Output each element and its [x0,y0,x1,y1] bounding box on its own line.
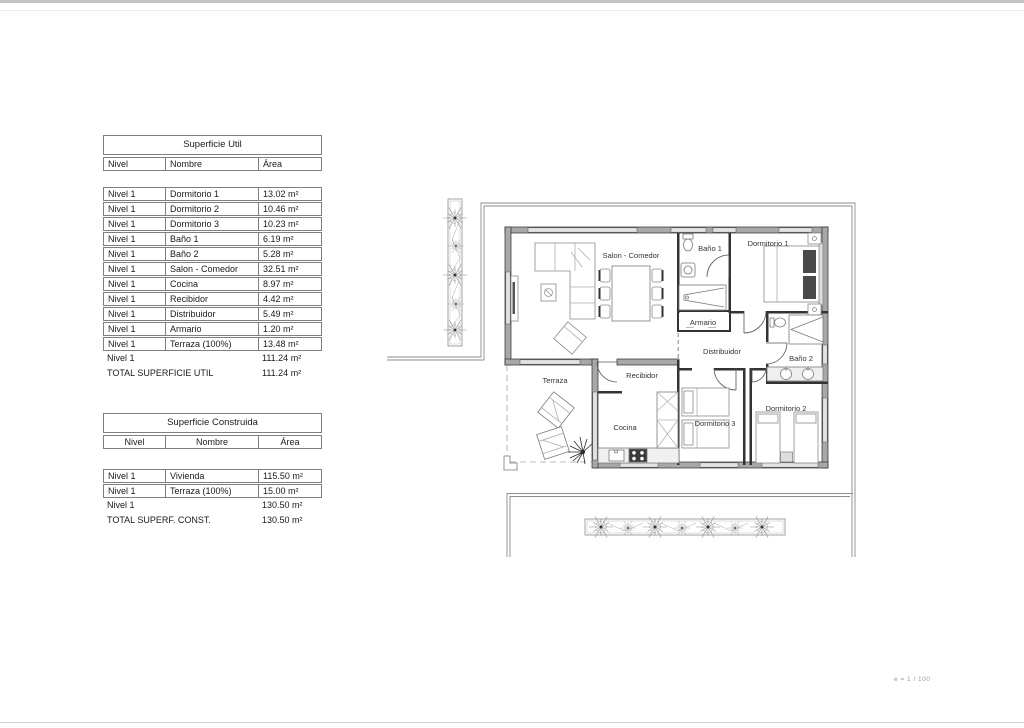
room-label-salon: Salon - Comedor [603,251,660,260]
room-label-cocina: Cocina [613,423,637,432]
lounge-chair [538,392,574,428]
toilet-tank [770,318,774,327]
dormitorio2-furniture [756,412,818,463]
stove [629,449,647,462]
pillow [684,391,693,413]
room-label-bano1: Baño 1 [698,244,722,253]
scale-note: e = 1 / 100 [894,676,930,683]
cocina-fixtures [598,392,679,463]
room-label-dormitorio3: Dormitorio 3 [695,419,736,428]
corner-step [504,456,517,470]
dormitorio3-furniture [682,388,729,448]
plant [568,437,592,464]
room-label-dormitorio2: Dormitorio 2 [766,404,807,413]
headboard [819,243,823,305]
armchair [554,322,587,354]
toilet-tank [683,234,693,239]
entry-door [597,362,617,382]
dining-table [612,266,650,321]
dormitorio3-door [714,368,736,390]
dormitorio1-door [744,311,766,333]
pillow [803,250,816,273]
hedge-left [443,199,467,346]
room-label-dormitorio1: Dormitorio 1 [748,239,789,248]
bano2-door [766,343,787,364]
room-label-distribuidor: Distribuidor [703,347,741,356]
floor-plan-sheet: Superficie Util Nivel Nombre Área Nivel … [0,0,1024,728]
room-label-bano2: Baño 2 [789,354,813,363]
toilet [775,318,786,327]
pillow [796,414,816,423]
room-label-armario: Armario [690,318,716,327]
bano1-door [707,255,729,277]
pillow [758,414,778,423]
nightstand [781,452,793,462]
toilet [684,239,693,251]
bano2-fixtures [767,315,823,381]
sink-counter [767,367,823,381]
tv [513,282,516,314]
lounge-chair [537,427,570,460]
room-label-terraza: Terraza [542,376,568,385]
room-label-recibidor: Recibidor [626,371,658,380]
pillow [684,423,693,445]
floor-plan-svg: Salon - Comedor Baño 1 Dormitorio 1 Arma… [0,0,1024,728]
sofa [535,243,595,319]
hedge-bottom [585,517,785,538]
pillow [803,276,816,299]
